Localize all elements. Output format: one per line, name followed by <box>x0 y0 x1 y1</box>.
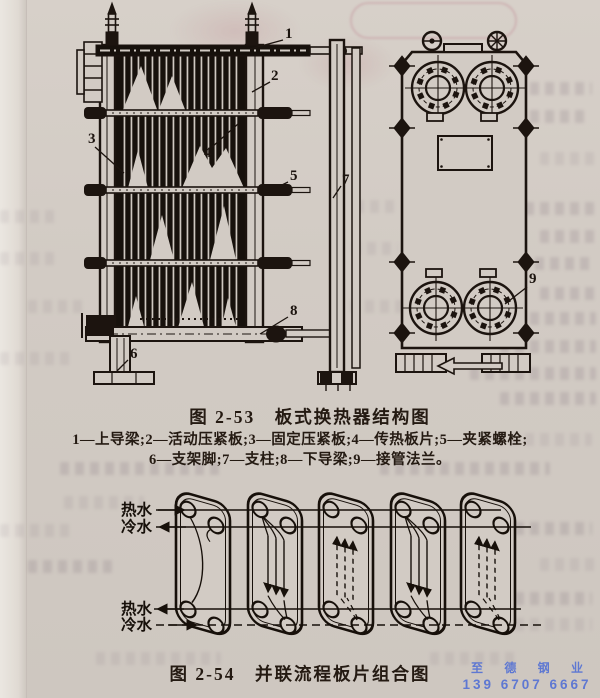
plate-1 <box>176 490 230 637</box>
label-cold-water-top: 冷水 <box>121 517 153 536</box>
plate-pack <box>115 56 246 336</box>
plate-2 <box>248 490 302 637</box>
watermark: 至 德 钢 业 139 6707 6667 <box>462 659 592 692</box>
label-hot-water-top: 热水 <box>121 500 153 519</box>
plate-5 <box>461 490 515 637</box>
callout-9: 9 <box>529 271 537 287</box>
watermark-phone: 139 6707 6667 <box>462 677 592 692</box>
label-cold-water-bottom: 冷水 <box>121 615 153 634</box>
side-view-drawing <box>77 3 362 391</box>
plate-3 <box>319 490 373 637</box>
bottom-pipe-elbow <box>82 313 114 338</box>
lifting-eye <box>423 32 441 50</box>
watermark-company: 至 德 钢 业 <box>462 659 592 676</box>
fixed-plate-top-post <box>105 3 119 45</box>
figure-2-53-caption: 图 2-53 板式换热器结构图 <box>0 404 600 429</box>
callout-7: 7 <box>342 172 350 188</box>
callout-1: 1 <box>285 26 293 42</box>
base-feet <box>396 354 530 374</box>
label-hot-water-bottom: 热水 <box>121 599 153 618</box>
callout-3: 3 <box>88 131 96 147</box>
callout-8: 8 <box>290 303 298 319</box>
plate-4 <box>391 490 445 637</box>
callout-2: 2 <box>271 68 279 84</box>
figure-2-54-drawing: 热水 冷水 热水 冷水 <box>0 478 600 653</box>
scanned-book-page: 1 2 3 4 5 6 7 8 9 图 2-53 板式换热器结构图 1—上导梁;… <box>0 0 600 698</box>
nameplate <box>438 136 492 170</box>
figure-2-53-legend-line1: 1—上导梁;2—活动压紧板;3—固定压紧板;4—传热板片;5—夹紧螺栓; <box>0 428 600 449</box>
callout-6: 6 <box>130 346 138 362</box>
callout-5: 5 <box>290 168 298 184</box>
lifting-eye <box>488 32 506 50</box>
figure-2-53-drawing: 1 2 3 4 5 6 7 8 9 <box>0 0 600 402</box>
support-column <box>318 40 360 391</box>
callout-4: 4 <box>204 145 212 161</box>
upper-guide-beam <box>96 45 362 58</box>
movable-plate-top-post <box>245 3 259 45</box>
front-view-drawing <box>389 32 539 374</box>
figure-2-53-legend-line2: 6—支架脚;7—支柱;8—下导梁;9—接管法兰。 <box>0 448 600 469</box>
support-foot <box>94 336 154 384</box>
